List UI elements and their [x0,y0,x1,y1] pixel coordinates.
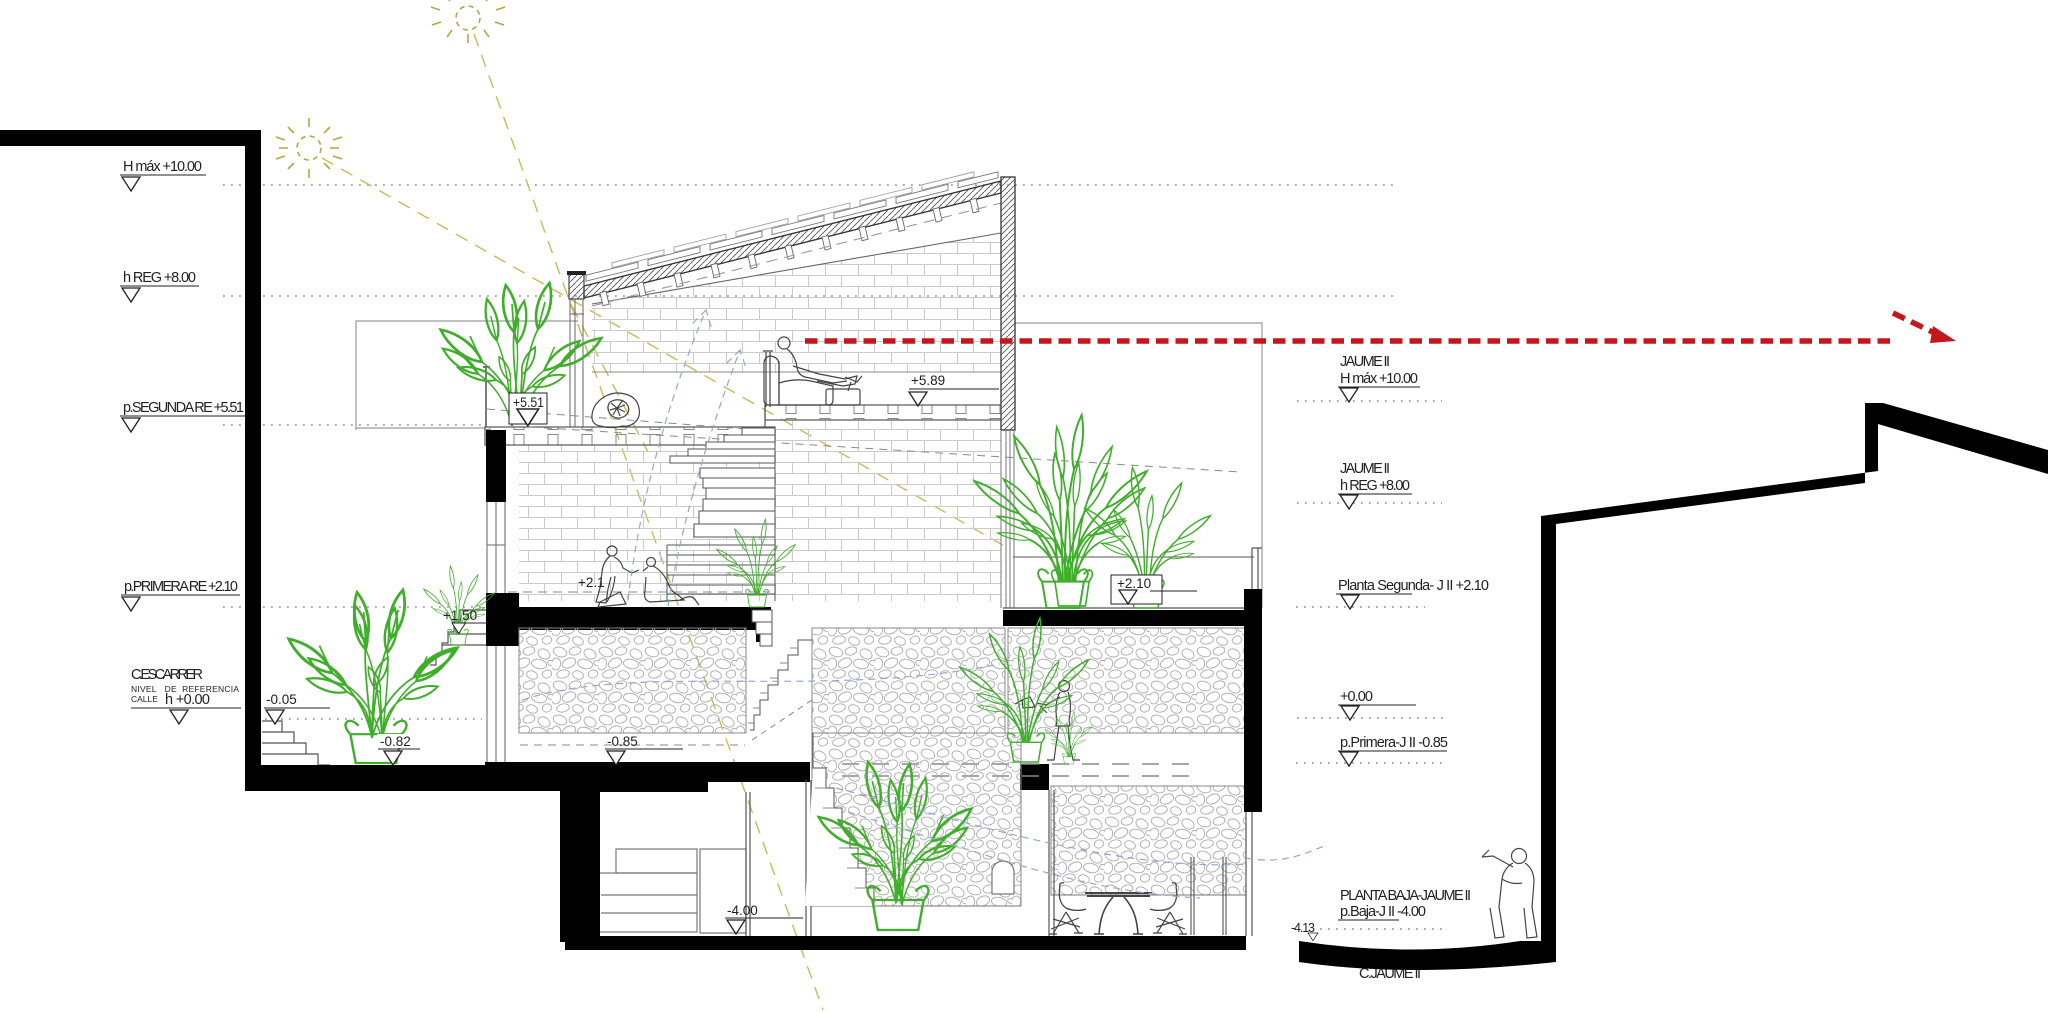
svg-text:+5.89: +5.89 [911,373,945,388]
svg-text:-0.82: -0.82 [380,734,411,749]
svg-text:+2.10: +2.10 [1117,576,1151,591]
svg-text:h REG +8.00: h REG +8.00 [123,270,196,286]
svg-text:H máx +10.00: H máx +10.00 [1340,371,1418,387]
svg-text:-0.05: -0.05 [266,692,297,707]
svg-text:p.SEGUNDA RE +5.51: p.SEGUNDA RE +5.51 [123,400,244,416]
svg-text:p.Baja-J II -4.00: p.Baja-J II -4.00 [1340,904,1426,920]
svg-text:Planta Segunda- J II +2.10: Planta Segunda- J II +2.10 [1338,578,1489,594]
svg-text:C.ESCARRER: C.ESCARRER [131,667,203,683]
svg-text:+1.50: +1.50 [443,608,477,623]
svg-text:+2.1: +2.1 [578,575,605,590]
svg-text:PLANTA BAJA-JAUME II: PLANTA BAJA-JAUME II [1340,888,1471,904]
svg-text:-4.00: -4.00 [727,903,758,918]
svg-text:h REG +8.00: h REG +8.00 [1340,478,1410,494]
svg-text:+0.00: +0.00 [1340,689,1373,705]
svg-text:+5.51: +5.51 [513,395,544,410]
svg-text:h +0.00: h +0.00 [165,692,210,708]
svg-text:CALLE: CALLE [131,694,158,704]
svg-text:p.PRIMERA RE +2.10: p.PRIMERA RE +2.10 [124,579,238,595]
svg-text:-0.85: -0.85 [607,734,638,749]
svg-text:JAUME II: JAUME II [1340,461,1390,477]
svg-text:JAUME II: JAUME II [1340,354,1390,370]
svg-text:p.Primera-J II -0.85: p.Primera-J II -0.85 [1340,735,1448,751]
svg-text:H máx +10.00: H máx +10.00 [123,159,202,175]
